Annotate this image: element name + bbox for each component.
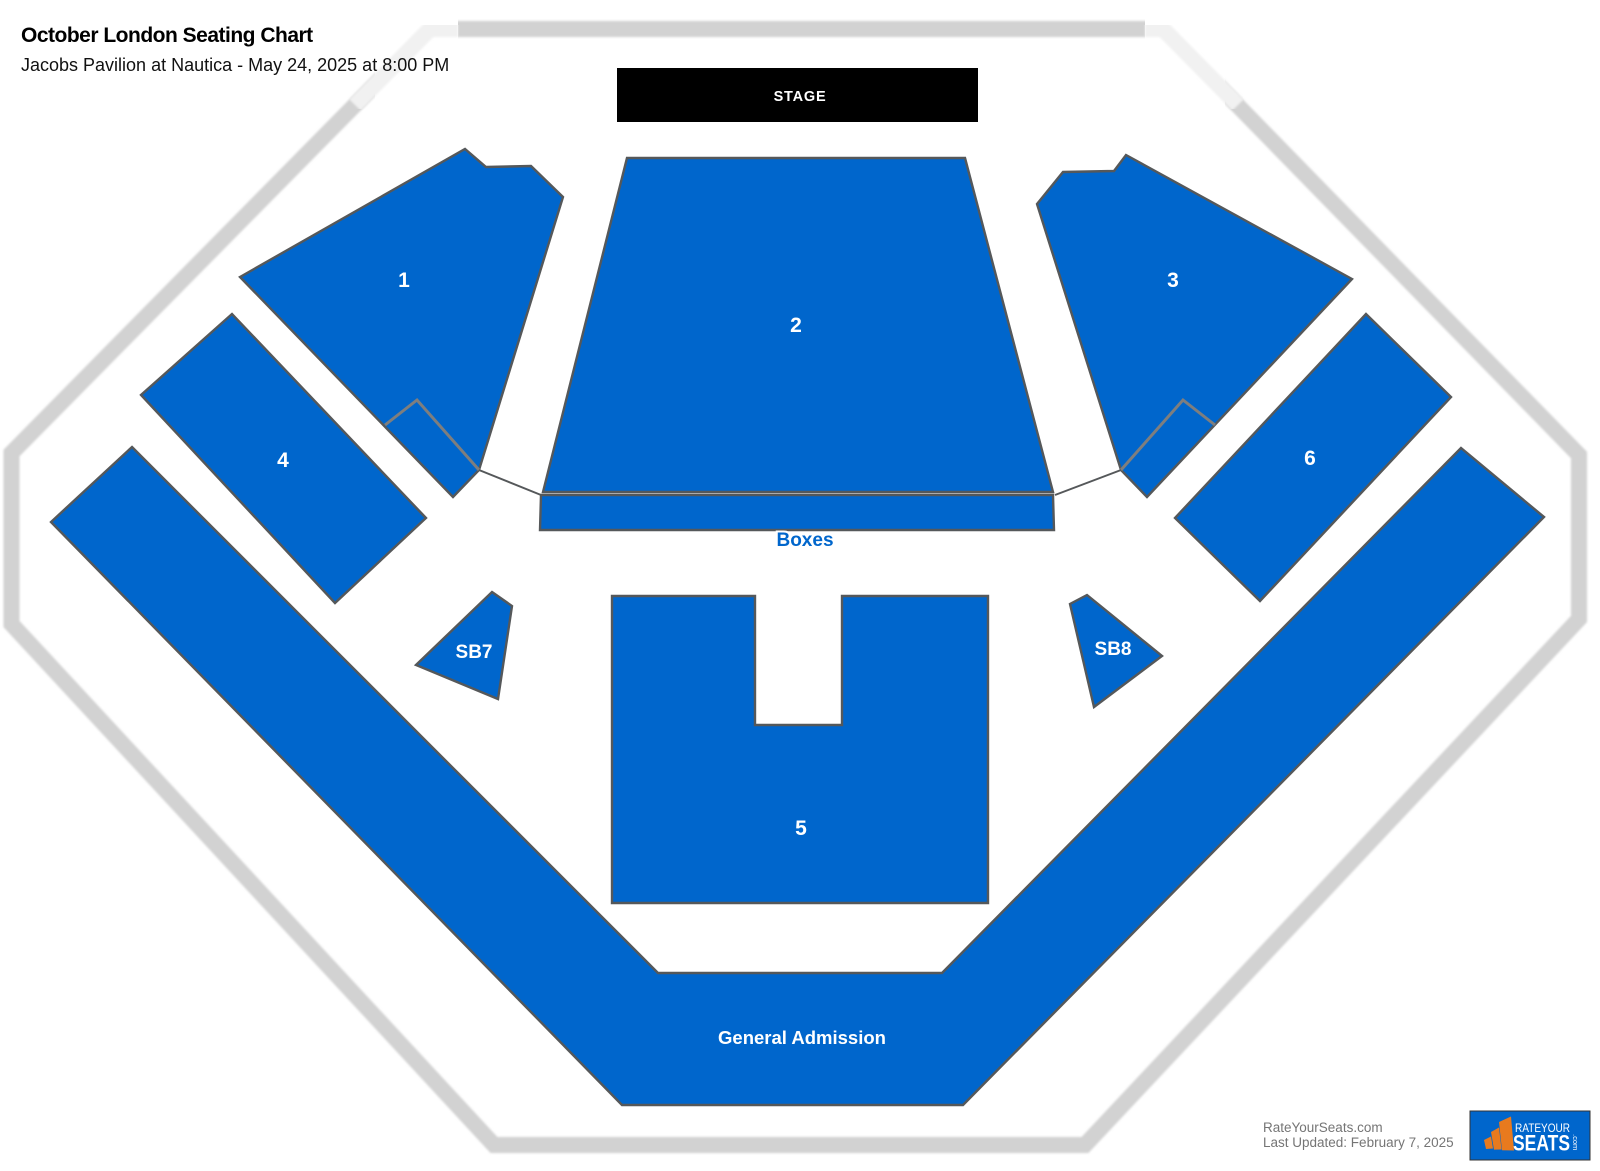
svg-text:1: 1: [398, 269, 410, 292]
svg-text:3: 3: [1167, 269, 1179, 292]
svg-text:6: 6: [1304, 447, 1316, 470]
svg-text:SB8: SB8: [1095, 639, 1132, 660]
svg-text:Boxes: Boxes: [776, 530, 833, 551]
svg-text:Last Updated: February 7, 2025: Last Updated: February 7, 2025: [1263, 1135, 1454, 1150]
svg-text:SB7: SB7: [456, 642, 493, 663]
svg-text:5: 5: [795, 817, 807, 840]
svg-text:SEATS: SEATS: [1513, 1131, 1570, 1156]
svg-text:4: 4: [277, 449, 289, 472]
svg-text:STAGE: STAGE: [774, 89, 827, 105]
svg-text:RateYourSeats.com: RateYourSeats.com: [1263, 1120, 1383, 1135]
svg-text:General Admission: General Admission: [718, 1027, 886, 1048]
svg-text:.com: .com: [1571, 1134, 1580, 1150]
svg-text:2: 2: [790, 314, 802, 337]
